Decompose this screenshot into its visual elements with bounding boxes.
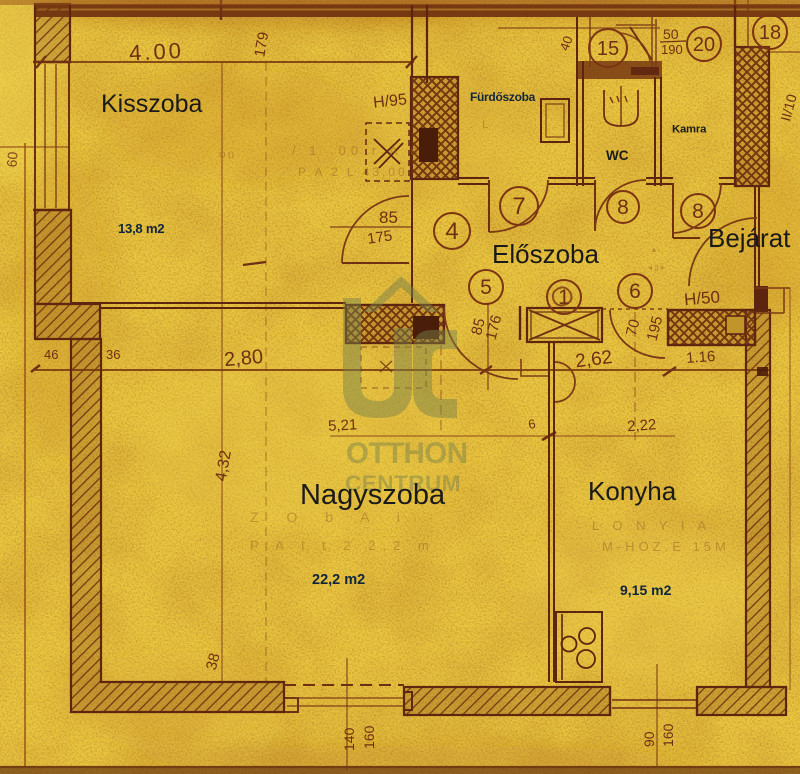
svg-text:18: 18 <box>759 22 781 44</box>
svg-text:P A I t 2 2,2 m: P A I t 2 2,2 m <box>250 538 436 553</box>
svg-text:▲: ▲ <box>650 245 658 254</box>
svg-text:46: 46 <box>44 347 58 362</box>
svg-text:Konyha: Konyha <box>588 476 677 506</box>
svg-text:50: 50 <box>663 26 679 42</box>
svg-text:oo: oo <box>219 147 236 161</box>
svg-text:/ 1 .00 r A n: / 1 .00 r A n <box>292 143 423 158</box>
svg-text:H/95: H/95 <box>372 91 407 111</box>
svg-text:4: 4 <box>445 218 458 245</box>
svg-text:2,62: 2,62 <box>574 347 613 372</box>
svg-text:160: 160 <box>660 723 676 747</box>
svg-text:1.16: 1.16 <box>686 348 716 367</box>
svg-text:4.00: 4.00 <box>128 38 184 66</box>
svg-text:9,15 m2: 9,15 m2 <box>620 582 672 598</box>
svg-text:13,8 m2: 13,8 m2 <box>118 221 164 236</box>
svg-text:160: 160 <box>361 725 377 749</box>
svg-text:90: 90 <box>641 731 657 747</box>
svg-text:2,22: 2,22 <box>627 416 657 435</box>
svg-text:P A 2 L 43,00: P A 2 L 43,00 <box>298 165 408 179</box>
svg-text:Fürdőszoba: Fürdőszoba <box>470 90 536 104</box>
svg-text:15: 15 <box>597 38 619 60</box>
svg-text:Nagyszoba: Nagyszoba <box>300 479 446 511</box>
svg-text:5,21: 5,21 <box>328 416 358 435</box>
svg-text:7: 7 <box>512 193 525 220</box>
svg-text:8: 8 <box>617 196 629 219</box>
svg-text:5: 5 <box>480 276 492 299</box>
svg-text:◂ ▯ ▸: ◂ ▯ ▸ <box>648 263 665 272</box>
svg-text:. L: . L <box>470 119 491 131</box>
svg-text:Z O b A i: Z O b A i <box>250 509 412 525</box>
svg-text:175: 175 <box>366 227 393 247</box>
svg-text:6: 6 <box>629 280 641 303</box>
svg-text:Bejárat: Bejárat <box>708 223 791 253</box>
svg-text:36: 36 <box>106 347 120 362</box>
svg-text:140: 140 <box>341 727 357 751</box>
svg-text:60: 60 <box>3 151 20 168</box>
svg-text:22,2 m2: 22,2 m2 <box>312 572 365 588</box>
svg-text:20: 20 <box>693 34 715 56</box>
svg-text:OTTHON: OTTHON <box>346 437 468 470</box>
svg-text:85: 85 <box>379 208 398 227</box>
svg-text:M-HOZ.E 15M: M-HOZ.E 15M <box>602 539 730 554</box>
svg-text:Kisszoba: Kisszoba <box>101 90 203 118</box>
svg-text:190: 190 <box>661 42 683 57</box>
svg-text:WC: WC <box>606 148 629 163</box>
svg-text:2,80: 2,80 <box>223 346 264 371</box>
svg-text:Előszoba: Előszoba <box>492 239 599 269</box>
svg-text:Kamra: Kamra <box>672 124 707 136</box>
svg-text:8: 8 <box>692 200 704 223</box>
svg-text:H/50: H/50 <box>683 287 720 309</box>
svg-text:L O N Y I A: L O N Y I A <box>592 518 711 533</box>
